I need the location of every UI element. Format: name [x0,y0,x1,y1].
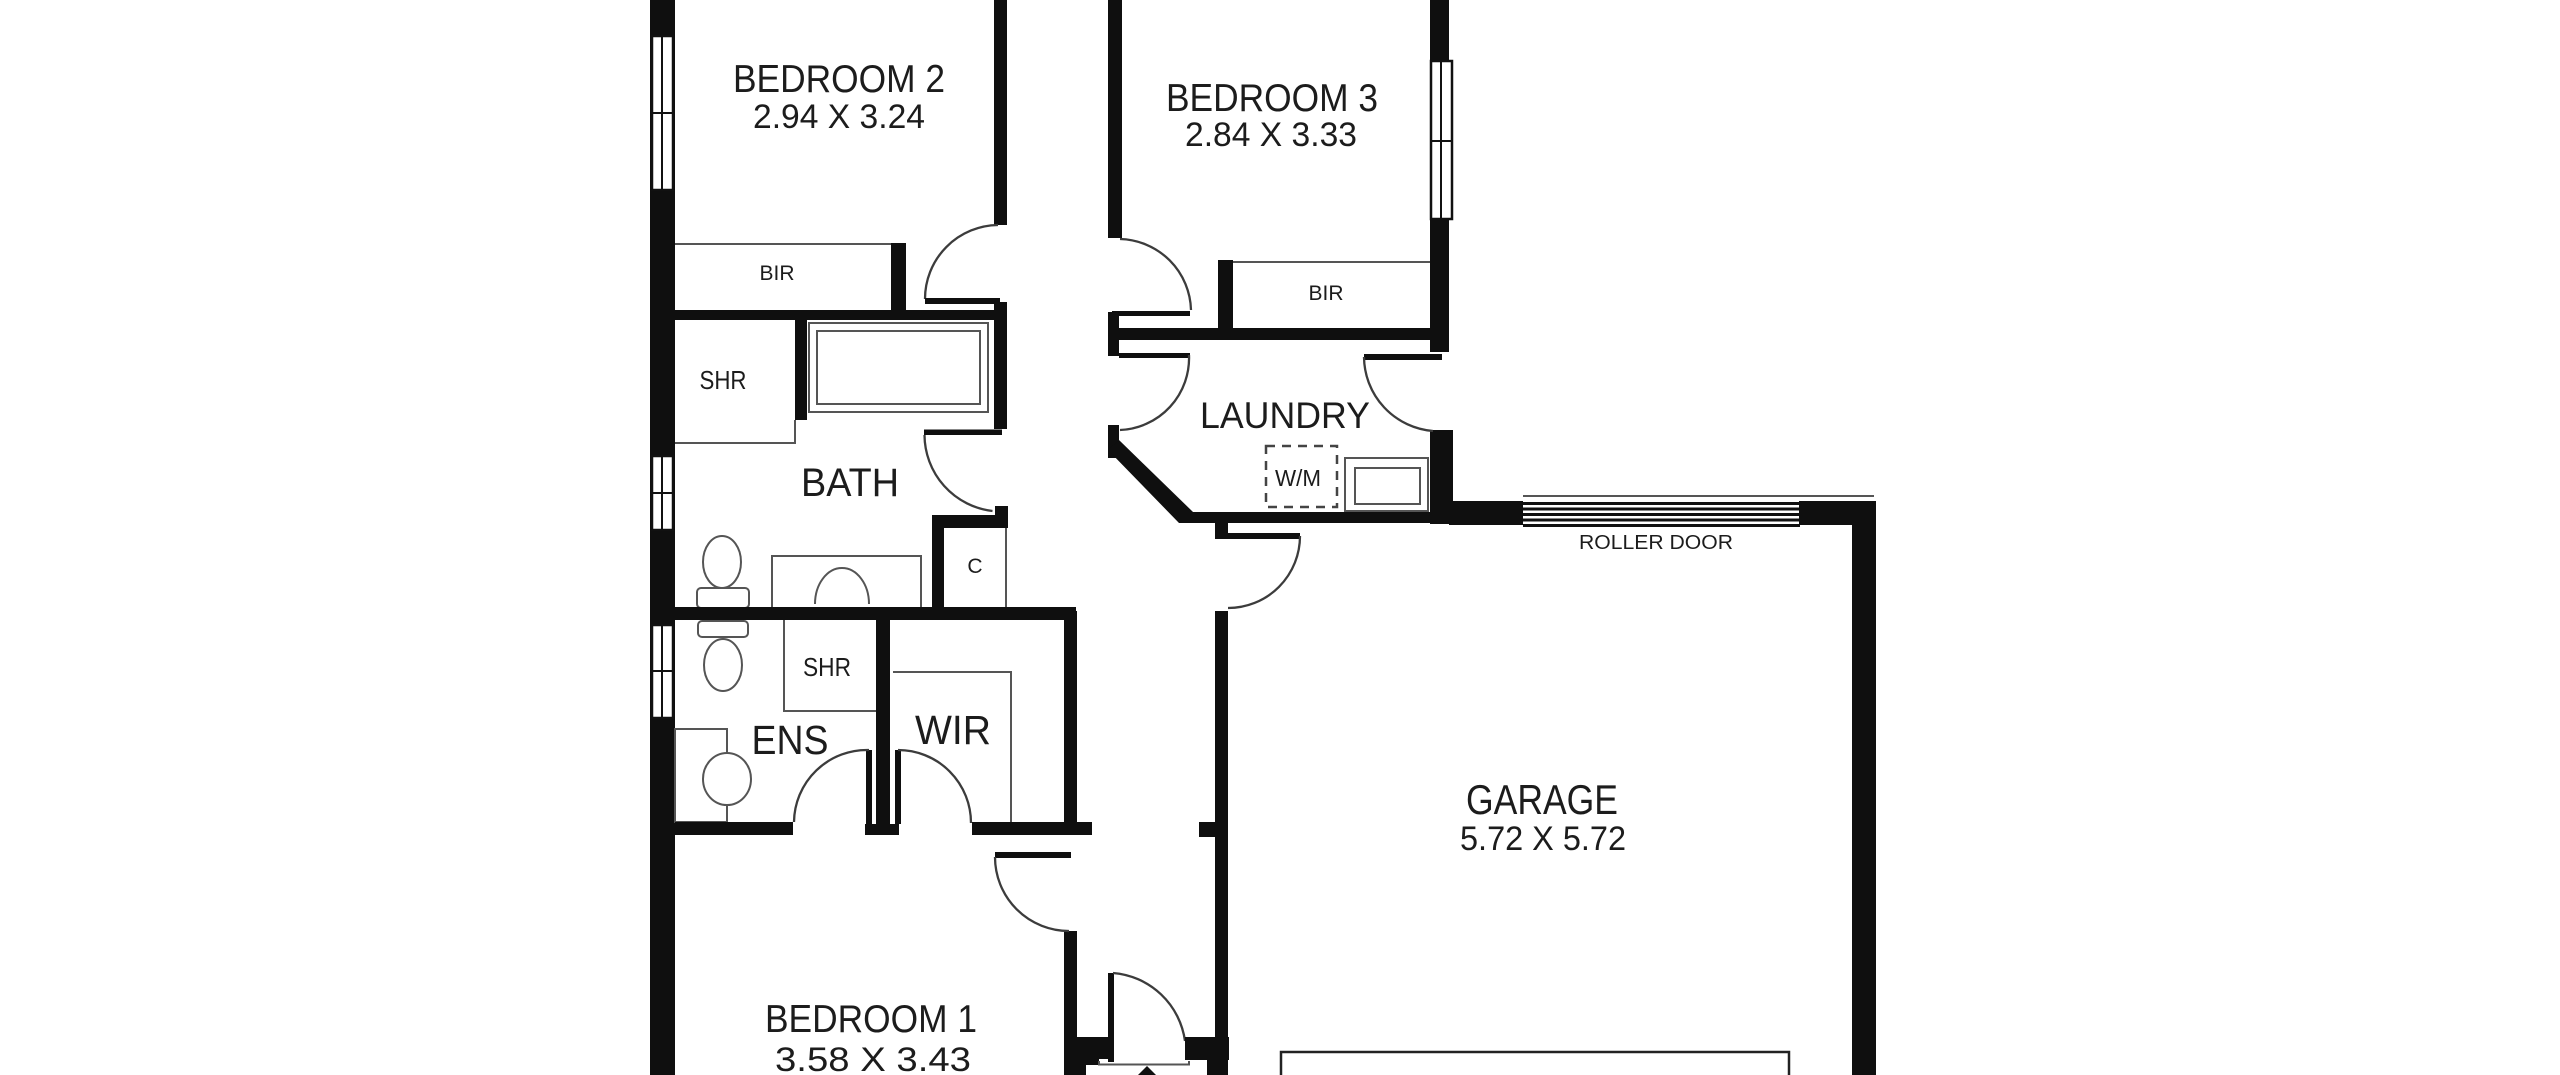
svg-text:W/M: W/M [1275,465,1321,491]
svg-text:SHR: SHR [803,652,851,682]
svg-text:BEDROOM 1: BEDROOM 1 [765,998,977,1041]
svg-text:BEDROOM 2: BEDROOM 2 [733,58,945,101]
svg-text:BIR: BIR [760,262,795,285]
svg-text:LAUNDRY: LAUNDRY [1200,395,1370,436]
svg-text:BATH: BATH [801,461,899,505]
svg-text:2.84 X 3.33: 2.84 X 3.33 [1185,116,1357,154]
svg-text:WIR: WIR [915,707,991,753]
svg-text:C: C [967,555,982,578]
svg-text:SHR: SHR [700,365,747,395]
svg-text:3.58 X 3.43: 3.58 X 3.43 [775,1041,971,1075]
svg-text:5.72 X 5.72: 5.72 X 5.72 [1460,820,1626,858]
svg-text:2.94 X 3.24: 2.94 X 3.24 [753,98,925,136]
svg-text:ENS: ENS [752,717,829,763]
svg-text:GARAGE: GARAGE [1466,776,1618,823]
svg-text:ROLLER DOOR: ROLLER DOOR [1579,532,1733,554]
svg-text:BIR: BIR [1309,282,1344,305]
svg-text:BEDROOM 3: BEDROOM 3 [1166,77,1378,120]
